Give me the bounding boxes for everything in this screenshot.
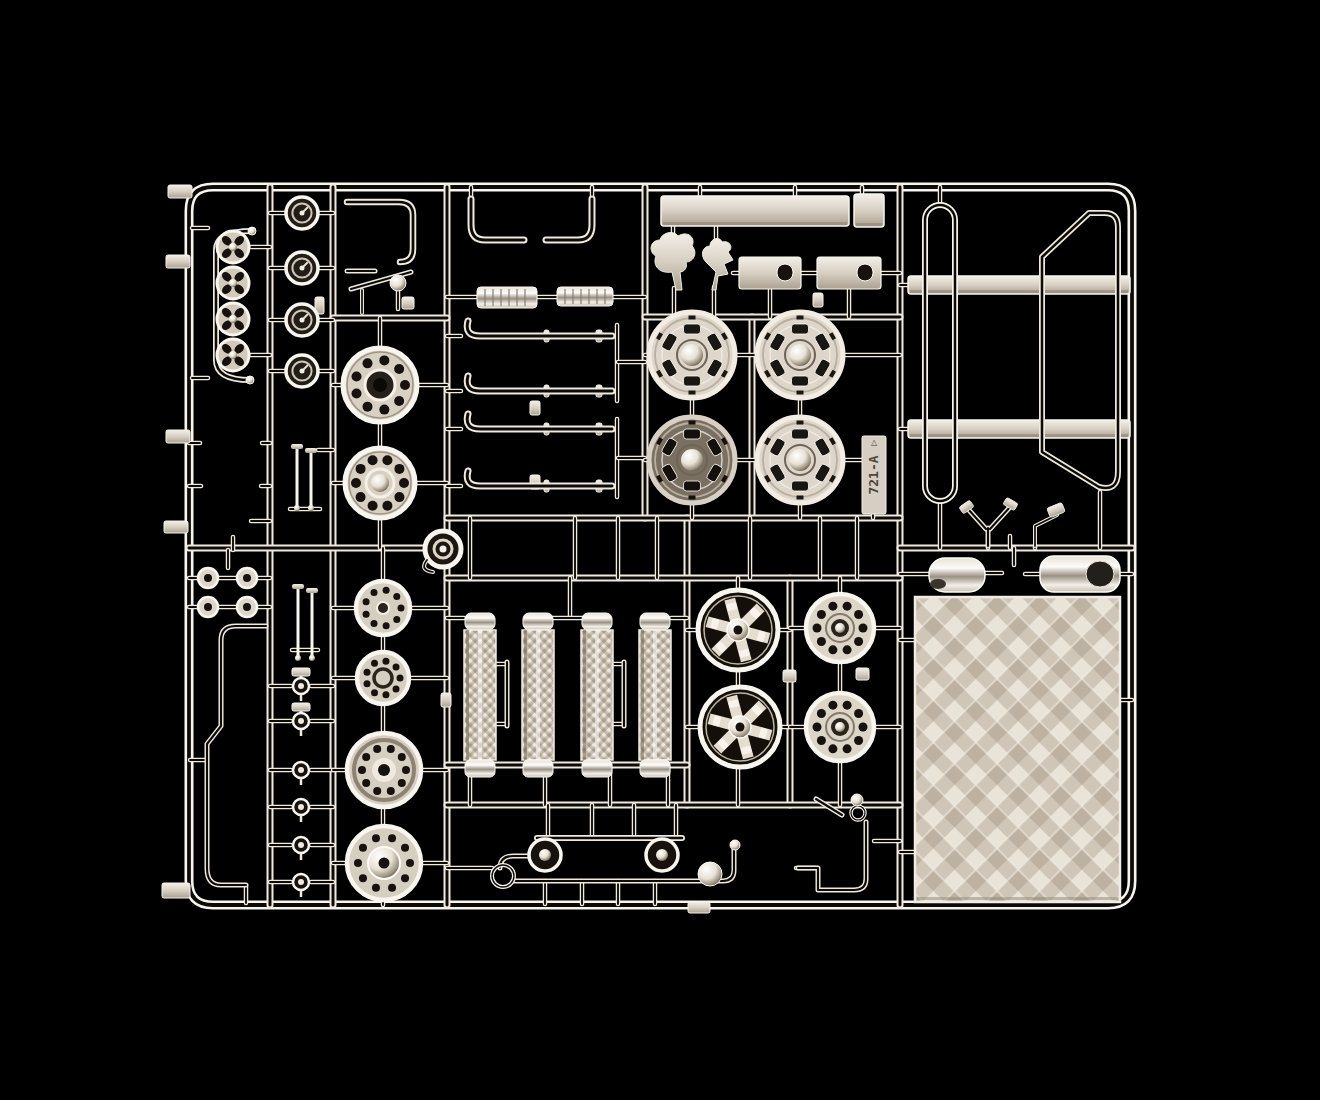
sprue-nub: [530, 401, 540, 415]
valve-part-1: [292, 668, 310, 701]
elbow-pipe-right: [546, 199, 592, 240]
wheel-fancy-part-4: [757, 417, 843, 503]
air-filter-part-4: [639, 613, 671, 777]
ring-part-1: [492, 865, 514, 887]
wheel-fancy-part-1: [649, 312, 735, 398]
sprue-edge-tab: [164, 521, 188, 533]
sprue-nub: [441, 693, 451, 707]
wheel-drum-part-1: [356, 581, 410, 635]
gauge-part-3: [286, 304, 318, 336]
valve-part-4: [293, 799, 309, 822]
valve-part-5: [293, 837, 309, 860]
sphere-part-3: [730, 840, 740, 850]
horn-part-2: [217, 267, 249, 299]
sprue-edge-tab: [688, 902, 710, 913]
gauge-part-4: [286, 355, 318, 387]
bulb-part-2: [237, 568, 257, 588]
sprue-nub: [813, 293, 823, 307]
slotted-plate-part-2: [817, 257, 881, 289]
sphere-part-2: [390, 275, 406, 291]
wheel-spoked-part-1: [698, 590, 778, 670]
sphere-part-5: [246, 376, 254, 384]
bent-pipe-part: [207, 626, 266, 885]
wheel-fancy-part-3: [649, 417, 735, 503]
muffler-part-1: [477, 287, 537, 308]
slotted-plate-part-1: [739, 257, 801, 289]
wheel-drum-part-3: [347, 733, 421, 807]
sprue-nub: [856, 668, 869, 680]
sprue-edge-tab: [166, 430, 190, 443]
sprue-id-tag: 721-A△: [862, 436, 886, 514]
gauge-part-2: [286, 252, 318, 284]
sphere-part-4: [248, 227, 256, 235]
sphere-part-1: [698, 862, 722, 886]
horn-part-1: [217, 231, 249, 263]
air-filter-part-1: [464, 613, 496, 777]
sprue-id-text: 721-A: [866, 455, 881, 494]
hook-pipe-part: [347, 202, 413, 262]
gauge-part-1: [286, 197, 318, 229]
wheel-steel-part-1: [806, 594, 874, 662]
volute-part: [424, 531, 461, 572]
figure-silhouette-part: [703, 239, 733, 290]
flat-bar-part-2: [908, 420, 1130, 438]
checker-plate-part: [915, 597, 1120, 902]
bell-part-2: [646, 839, 678, 871]
end-panel-part: [854, 194, 884, 227]
wheel-drum-part-2: [357, 652, 409, 704]
recycle-symbol: △: [871, 438, 878, 447]
exhaust-pipe-1: [467, 321, 612, 336]
horn-part-4: [217, 339, 249, 371]
bulb-part-1: [198, 568, 218, 588]
sprue-edge-tab: [166, 255, 190, 268]
wishbone-part: [968, 506, 1011, 546]
long-panel-part: [661, 196, 849, 226]
tall-loop-part: [925, 205, 955, 501]
chrome-sprue-illustration: 721-A△: [0, 0, 1320, 1100]
exhaust-pipe-3: [467, 414, 612, 429]
mirror-housing-2: [1040, 556, 1120, 592]
poodle-silhouette-part: [651, 233, 695, 290]
wheel-spoked-part-2: [700, 687, 780, 767]
horn-part-3: [217, 303, 249, 335]
sprue-nub: [402, 297, 414, 309]
air-filter-part-2: [522, 613, 554, 777]
bulb-part-3: [198, 597, 218, 617]
wheel-drum-part-4: [347, 826, 421, 900]
bell-part-1: [529, 839, 561, 871]
exhaust-pipe-2: [467, 376, 612, 391]
valve-part-6: [293, 874, 309, 897]
mirror-housing-1: [929, 558, 985, 592]
valve-part-2: [292, 703, 310, 736]
sprue-edge-tab: [168, 185, 192, 198]
bulb-part-4: [237, 597, 257, 617]
muffler-part-2: [557, 287, 613, 306]
valve-part-3: [293, 762, 309, 785]
sprue-nub: [783, 670, 796, 682]
flat-bar-part-1: [908, 276, 1130, 294]
hex-loop-part: [1042, 213, 1118, 488]
bearing-hub-part-1: [343, 348, 417, 422]
mirror-arm-part: [1035, 515, 1057, 546]
wheel-steel-part-2: [806, 693, 874, 761]
pin-part-2: [305, 448, 317, 511]
pad-part-3: [1047, 502, 1066, 517]
sphere-part-6: [851, 794, 863, 806]
sprue-edge-tab: [162, 883, 190, 898]
pin-part-1: [291, 444, 303, 511]
air-filter-part-3: [581, 613, 613, 777]
bracket-pipe-part: [798, 822, 866, 890]
elbow-pipe-left: [471, 199, 524, 240]
bearing-hub-part-2: [345, 448, 415, 518]
wheel-fancy-part-2: [757, 312, 843, 398]
sprue-photo: Photograph of a chrome-plated plastic mo…: [0, 0, 1320, 1100]
